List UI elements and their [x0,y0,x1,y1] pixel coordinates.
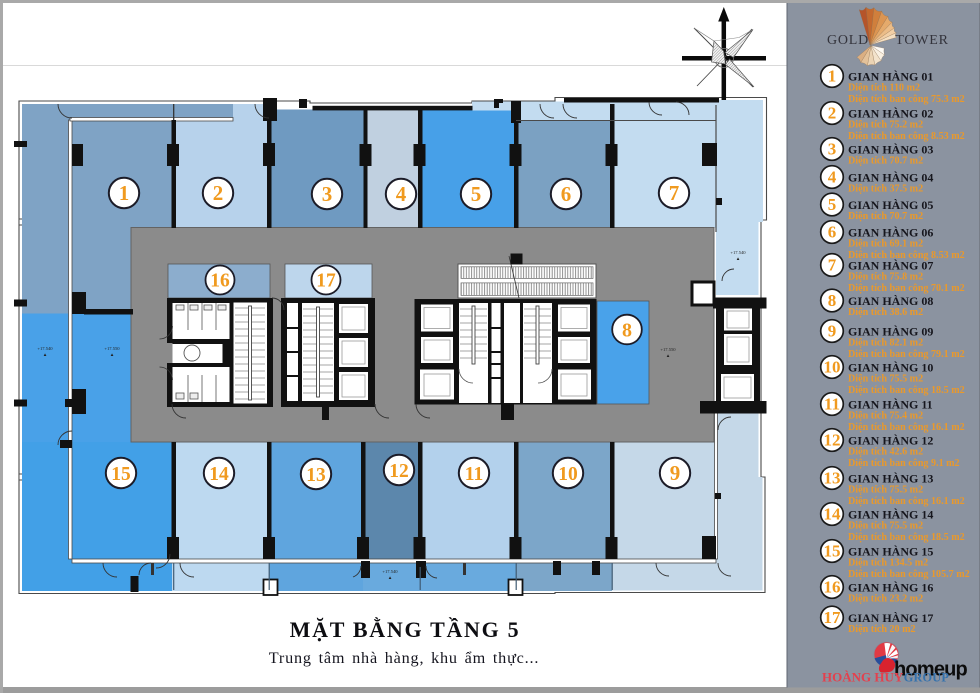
svg-text:9: 9 [670,461,681,485]
svg-text:6: 6 [561,182,572,206]
svg-text:Diện tích 75.8 m2: Diện tích 75.8 m2 [848,272,923,283]
svg-text:GIAN HÀNG 13: GIAN HÀNG 13 [848,472,933,486]
svg-text:GIAN HÀNG 08: GIAN HÀNG 08 [848,294,933,308]
svg-text:17: 17 [316,271,336,292]
svg-text:12: 12 [389,461,409,482]
svg-text:Diện tích ban công 70.1 m2: Diện tích ban công 70.1 m2 [848,283,965,294]
svg-text:17: 17 [824,608,842,627]
svg-text:15: 15 [824,542,841,561]
svg-text:GIAN HÀNG 02: GIAN HÀNG 02 [848,107,933,121]
svg-text:Diện tích ban công 18.5 m2: Diện tích ban công 18.5 m2 [848,532,965,543]
svg-text:9: 9 [828,322,837,341]
svg-text:15: 15 [111,464,131,485]
svg-text:MẶT BẰNG TẦNG 5: MẶT BẰNG TẦNG 5 [290,617,521,642]
svg-text:GIAN HÀNG 16: GIAN HÀNG 16 [848,581,933,595]
svg-text:Diện tích 20 m2: Diện tích 20 m2 [848,624,916,635]
svg-text:Diện tích 75.4 m2: Diện tích 75.4 m2 [848,411,923,422]
svg-text:4: 4 [828,168,837,187]
svg-text:16: 16 [824,578,841,597]
svg-text:GIAN HÀNG 03: GIAN HÀNG 03 [848,143,933,157]
svg-text:GIAN HÀNG 06: GIAN HÀNG 06 [848,226,933,240]
svg-text:Diện tích 75.5 m2: Diện tích 75.5 m2 [848,521,923,532]
svg-text:Diện tích ban công 75.3 m2: Diện tích ban công 75.3 m2 [848,94,965,105]
svg-text:2: 2 [213,181,224,205]
svg-text:Diện tích 38.6 m2: Diện tích 38.6 m2 [848,307,923,318]
svg-text:Diện tích 37.5 m2: Diện tích 37.5 m2 [848,184,923,195]
svg-text:Diện tích 82.1 m2: Diện tích 82.1 m2 [848,338,923,349]
svg-text:GIAN HÀNG 07: GIAN HÀNG 07 [848,259,933,273]
svg-text:TOWER: TOWER [895,33,949,48]
svg-text:Diện tích ban công 8.53 m2: Diện tích ban công 8.53 m2 [848,131,965,142]
svg-text:▲: ▲ [666,353,671,358]
svg-text:HOÀNG HUY: HOÀNG HUY [822,670,904,685]
svg-text:8: 8 [622,320,632,342]
svg-text:Diện tích 69.1 m2: Diện tích 69.1 m2 [848,239,923,250]
svg-text:12: 12 [824,431,841,450]
svg-text:▲: ▲ [388,575,393,580]
svg-text:GIAN HÀNG 09: GIAN HÀNG 09 [848,325,933,339]
svg-text:7: 7 [828,256,837,275]
svg-text:10: 10 [824,358,841,377]
svg-text:7: 7 [669,181,680,205]
svg-text:GIAN HÀNG 01: GIAN HÀNG 01 [848,70,933,84]
svg-text:5: 5 [471,182,482,206]
svg-text:11: 11 [465,464,483,485]
svg-text:+17.540: +17.540 [730,250,746,255]
svg-text:Diện tích 75.5 m2: Diện tích 75.5 m2 [848,485,923,496]
svg-text:Diện tích ban công 18.5 m2: Diện tích ban công 18.5 m2 [848,385,965,396]
svg-text:1: 1 [119,181,130,205]
svg-text:Trung tâm nhà hàng, khu ẩm thự: Trung tâm nhà hàng, khu ẩm thực... [269,649,539,667]
svg-text:5: 5 [828,195,837,214]
svg-text:GOLD: GOLD [827,33,869,48]
svg-text:Diện tích 70.7 m2: Diện tích 70.7 m2 [848,156,923,167]
svg-text:3: 3 [828,140,837,159]
svg-text:GIAN HÀNG 14: GIAN HÀNG 14 [848,508,933,522]
svg-text:Diện tích 75.2 m2: Diện tích 75.2 m2 [848,120,923,131]
svg-text:+17.540: +17.540 [37,346,53,351]
svg-text:GROUP: GROUP [904,671,950,685]
svg-text:13: 13 [824,469,841,488]
svg-text:Diện tích 110 m2: Diện tích 110 m2 [848,83,920,94]
svg-text:GIAN HÀNG 05: GIAN HÀNG 05 [848,198,933,212]
svg-text:Diện tích ban công 105.7 m2: Diện tích ban công 105.7 m2 [848,569,970,580]
svg-text:▲: ▲ [736,256,741,261]
svg-text:6: 6 [828,223,837,242]
svg-text:+17.550: +17.550 [104,346,120,351]
svg-text:10: 10 [558,464,578,485]
svg-text:4: 4 [396,182,407,206]
svg-text:8: 8 [828,291,837,310]
svg-text:GIAN HÀNG 11: GIAN HÀNG 11 [848,398,933,412]
svg-text:GIAN HÀNG 04: GIAN HÀNG 04 [848,171,933,185]
svg-text:16: 16 [210,271,230,292]
svg-text:+17.540: +17.540 [382,569,398,574]
svg-text:GIAN HÀNG 10: GIAN HÀNG 10 [848,361,933,375]
svg-text:Diện tích 70.7 m2: Diện tích 70.7 m2 [848,211,923,222]
svg-text:Diện tích 75.5 m2: Diện tích 75.5 m2 [848,374,923,385]
svg-text:1: 1 [828,67,837,86]
svg-text:2: 2 [828,104,837,123]
svg-text:GIAN HÀNG 15: GIAN HÀNG 15 [848,545,933,559]
svg-text:Diện tích 134.5 m2: Diện tích 134.5 m2 [848,558,928,569]
svg-text:GIAN HÀNG 17: GIAN HÀNG 17 [848,611,933,625]
svg-text:Diện tích ban công 9.1 m2: Diện tích ban công 9.1 m2 [848,458,960,469]
svg-text:11: 11 [824,395,840,414]
svg-text:GIAN HÀNG 12: GIAN HÀNG 12 [848,434,933,448]
svg-text:Diện tích ban công 16.1 m2: Diện tích ban công 16.1 m2 [848,422,965,433]
svg-text:Diện tích ban công 16.1 m2: Diện tích ban công 16.1 m2 [848,496,965,507]
svg-text:+17.550: +17.550 [660,347,676,352]
svg-text:Diện tích ban công 79.1 m2: Diện tích ban công 79.1 m2 [848,349,965,360]
svg-text:14: 14 [209,464,229,485]
svg-text:Diện tích 23.2 m2: Diện tích 23.2 m2 [848,594,923,605]
svg-text:13: 13 [306,465,326,486]
svg-text:Diện tích 42.6 m2: Diện tích 42.6 m2 [848,447,923,458]
svg-text:▲: ▲ [43,352,48,357]
svg-text:14: 14 [824,505,842,524]
svg-text:3: 3 [322,182,333,206]
svg-text:▲: ▲ [110,352,115,357]
